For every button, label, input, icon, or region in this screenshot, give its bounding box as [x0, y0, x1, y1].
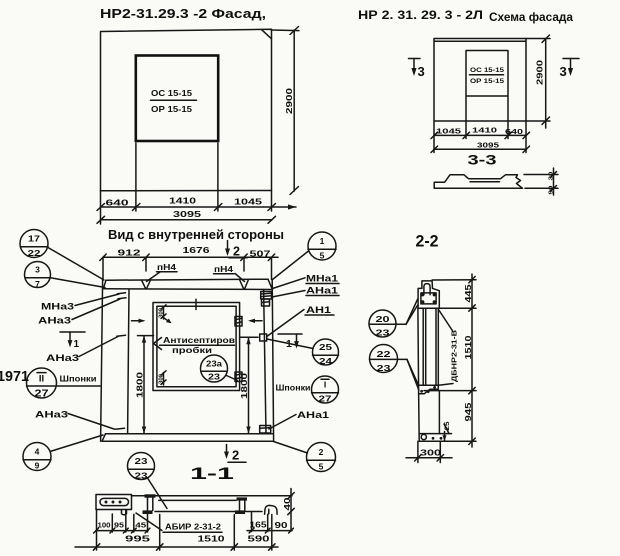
svg-text:1971: 1971: [0, 369, 29, 385]
svg-text:1410: 1410: [472, 127, 497, 134]
svg-text:22: 22: [28, 248, 41, 258]
svg-text:5: 5: [320, 251, 325, 261]
svg-text:1510: 1510: [198, 534, 225, 544]
svg-text:2: 2: [233, 245, 240, 259]
svg-text:ДБНР2-31-В: ДБНР2-31-В: [452, 330, 459, 382]
svg-text:ОР 15-15: ОР 15-15: [151, 104, 192, 114]
svg-text:507: 507: [250, 249, 271, 259]
svg-text:пН4: пН4: [157, 262, 176, 272]
svg-text:25: 25: [444, 421, 451, 430]
svg-text:23: 23: [208, 372, 220, 382]
svg-text:АНа3: АНа3: [46, 353, 79, 363]
svg-text:300: 300: [159, 374, 165, 384]
svg-text:90: 90: [549, 186, 555, 195]
svg-text:НР2-31.29.3 -2 Фасад,: НР2-31.29.3 -2 Фасад,: [100, 6, 266, 21]
svg-text:АБИР 2-31-2: АБИР 2-31-2: [165, 522, 221, 532]
svg-text:945: 945: [463, 402, 473, 421]
svg-text:1: 1: [74, 339, 80, 350]
svg-text:300: 300: [159, 308, 165, 318]
svg-text:165: 165: [250, 520, 267, 530]
svg-text:3095: 3095: [477, 142, 499, 149]
svg-text:1410: 1410: [169, 196, 196, 206]
svg-text:23: 23: [377, 363, 391, 373]
svg-text:20: 20: [376, 314, 390, 324]
svg-text:25: 25: [319, 342, 332, 352]
svg-text:Шпонки: Шпонки: [276, 383, 311, 393]
svg-text:24: 24: [319, 356, 332, 366]
svg-text:27: 27: [35, 389, 50, 400]
svg-text:27: 27: [319, 394, 332, 404]
svg-text:995: 995: [125, 534, 150, 544]
svg-text:30: 30: [549, 172, 555, 181]
svg-text:5: 5: [319, 462, 324, 472]
svg-text:Схема фасада: Схема фасада: [489, 10, 573, 24]
svg-text:1800: 1800: [135, 372, 145, 398]
svg-text:1-1: 1-1: [190, 464, 234, 483]
svg-text:ОС 15-15: ОС 15-15: [151, 88, 192, 98]
svg-text:АНа1: АНа1: [297, 410, 329, 420]
svg-text:II: II: [39, 374, 44, 385]
svg-text:9: 9: [35, 461, 40, 471]
svg-text:1800: 1800: [239, 373, 249, 399]
svg-text:1676: 1676: [183, 245, 210, 255]
svg-text:ОР 15-15: ОР 15-15: [470, 78, 504, 85]
svg-text:2: 2: [319, 447, 324, 457]
svg-text:300: 300: [420, 448, 441, 458]
svg-text:23: 23: [135, 471, 148, 481]
svg-text:1: 1: [320, 236, 325, 246]
svg-text:23: 23: [376, 328, 390, 338]
svg-text:Антисептиров: Антисептиров: [163, 336, 235, 345]
svg-text:пробки: пробки: [172, 345, 212, 355]
svg-text:АНа1: АНа1: [306, 286, 338, 296]
svg-text:Шпонки: Шпонки: [60, 374, 97, 384]
svg-text:912: 912: [118, 248, 141, 258]
svg-text:100: 100: [98, 523, 111, 530]
svg-text:17: 17: [28, 234, 40, 244]
svg-text:НР 2. 31. 29. 3 - 2Л: НР 2. 31. 29. 3 - 2Л: [358, 8, 483, 22]
svg-text:90: 90: [275, 520, 288, 530]
svg-text:45: 45: [135, 523, 146, 530]
svg-text:3: 3: [35, 265, 40, 275]
svg-text:2900: 2900: [284, 88, 294, 114]
svg-text:пН4: пН4: [214, 264, 233, 274]
svg-text:АНа3: АНа3: [35, 410, 68, 420]
svg-text:МНа3: МНа3: [41, 302, 74, 312]
svg-text:3: 3: [418, 64, 425, 79]
svg-text:640: 640: [106, 198, 129, 208]
svg-text:445: 445: [463, 284, 473, 302]
svg-text:95: 95: [114, 523, 124, 530]
svg-text:23: 23: [135, 456, 148, 466]
svg-text:3: 3: [560, 64, 567, 79]
svg-text:3-3: 3-3: [468, 152, 497, 168]
svg-text:1045: 1045: [436, 128, 461, 135]
svg-text:22: 22: [377, 349, 391, 359]
svg-text:4: 4: [35, 447, 40, 457]
svg-text:I: I: [324, 380, 326, 390]
svg-text:40: 40: [282, 497, 292, 510]
svg-text:Вид с внутренней стороны: Вид с внутренней стороны: [108, 228, 284, 242]
svg-text:3095: 3095: [173, 209, 201, 219]
svg-text:23а: 23а: [206, 359, 222, 369]
svg-text:2900: 2900: [535, 60, 545, 85]
svg-text:ОС 15-15: ОС 15-15: [470, 67, 504, 74]
svg-text:2: 2: [232, 448, 239, 463]
svg-text:7: 7: [35, 279, 40, 289]
svg-text:МНа1: МНа1: [306, 274, 338, 284]
svg-text:640: 640: [505, 129, 523, 136]
svg-text:АН1: АН1: [306, 305, 331, 315]
svg-text:1045: 1045: [234, 197, 262, 207]
svg-text:1510: 1510: [463, 335, 473, 359]
svg-text:2-2: 2-2: [416, 232, 439, 251]
svg-text:590: 590: [248, 534, 270, 544]
svg-text:АНа3: АНа3: [38, 316, 71, 326]
